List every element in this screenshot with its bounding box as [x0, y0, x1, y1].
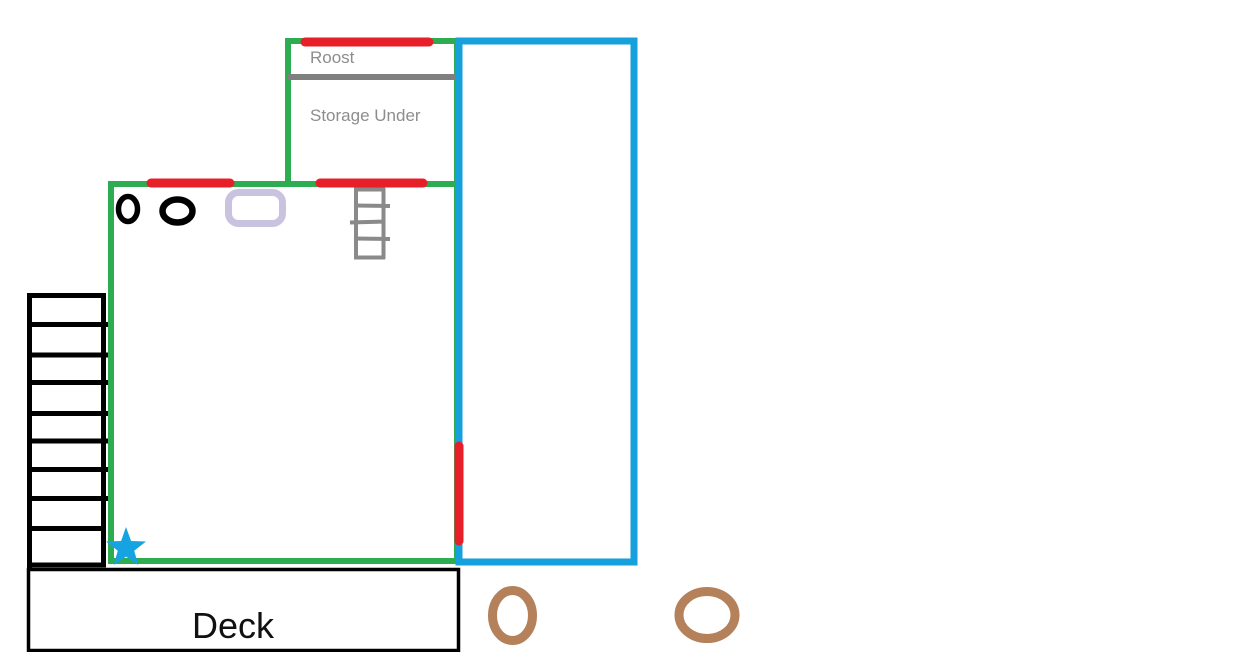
black-oval-1 — [119, 197, 138, 222]
main-room-outline — [111, 184, 457, 561]
ladder-rung — [350, 222, 385, 223]
exterior-stairs — [27, 293, 108, 571]
run-enclosure-outline — [459, 41, 634, 562]
brown-oval-2 — [679, 592, 735, 639]
interior-ladder — [350, 188, 390, 259]
nest-box-outline — [229, 193, 283, 224]
floorplan-canvas: Roost Storage Under Deck — [0, 0, 1248, 652]
ladder-rung — [354, 206, 390, 207]
storage-under-label: Storage Under — [310, 107, 421, 124]
ladder-rung — [354, 239, 390, 240]
deck-label: Deck — [28, 608, 438, 644]
black-oval-2 — [163, 200, 193, 223]
floorplan-drawing — [0, 0, 1248, 652]
roost-label: Roost — [310, 49, 354, 66]
brown-oval-1 — [493, 591, 533, 641]
